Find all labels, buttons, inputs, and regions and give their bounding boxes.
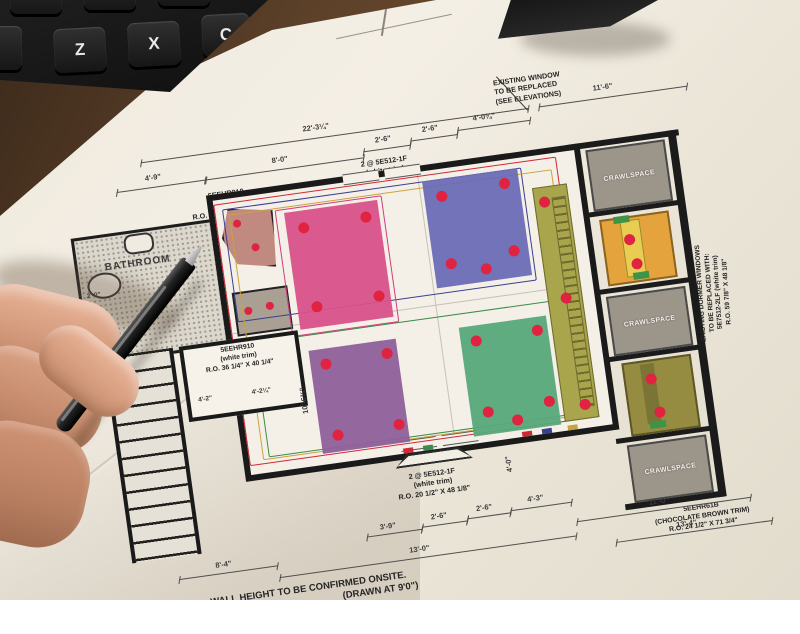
dim-3-9: 3'-9" <box>379 520 396 531</box>
dim-line-4-0-3-4 <box>457 120 530 131</box>
dim-8-4: 8'-4" <box>215 559 232 570</box>
dim-line-4-9 <box>117 180 206 194</box>
room-indigo <box>422 168 532 288</box>
dim-line-2-6d <box>467 512 511 519</box>
dim-line-3-9 <box>367 529 423 538</box>
photo-scene: 22'-3¼" 11'-6" 4'-9" 8'-0" 2'-6" 2'-6" 4… <box>0 0 800 600</box>
key-label: Z <box>74 40 85 61</box>
dim-line-2-6a <box>363 145 411 153</box>
dim-4-0-3-4: 4'-0¾" <box>472 111 495 123</box>
crawlspace-top: CRAWLSPACE <box>585 139 673 212</box>
crawlspace-middle: CRAWLSPACE <box>606 286 694 357</box>
key-partial <box>158 0 210 6</box>
key-x: X <box>127 21 181 68</box>
key-partial <box>0 26 22 70</box>
key-partial <box>84 0 136 10</box>
crawlspace-label: CRAWLSPACE <box>624 314 676 328</box>
crawlspace-label: CRAWLSPACE <box>603 168 655 182</box>
dim-4-0-vertical: 4'-0" <box>503 455 514 472</box>
window-label-bottom-center: 2 @ 5E512-1F (white trim) R.O. 20 1/2" X… <box>363 459 504 506</box>
key-label: C <box>219 25 232 46</box>
room-pink <box>284 200 394 330</box>
dim-line-4-3 <box>511 502 573 512</box>
note-wall-height: WALL HEIGHT TO BE CONFIRMED ONSITE. (DRA… <box>210 550 550 622</box>
room-purple <box>308 339 410 454</box>
room-green <box>459 316 561 437</box>
key-label: X <box>148 34 160 55</box>
callout-existing-window: EXISTING WINDOW TO BE REPLACED (SEE ELEV… <box>492 59 635 106</box>
dim-line-2-6b <box>410 134 458 142</box>
dim-2-6b: 2'-6" <box>421 123 438 134</box>
dim-4-3: 4'-3" <box>527 493 544 504</box>
crawlspace-bottom: CRAWLSPACE <box>627 434 714 503</box>
dim-line-22-3 <box>141 108 529 164</box>
dim-11-0: 11'-0" <box>648 495 669 507</box>
dim-4-9: 4'-9" <box>144 172 161 183</box>
dim-2-6a: 2'-6" <box>374 133 391 144</box>
dim-2-6d: 2'-6" <box>475 502 492 513</box>
dim-top-total: 22'-3¼" <box>302 121 330 134</box>
dim-line-2-6c <box>422 520 468 527</box>
key-partial <box>10 0 62 14</box>
faint-tick-line <box>381 8 387 36</box>
dim-2-6c: 2'-6" <box>430 510 447 521</box>
key-z: Z <box>53 27 107 74</box>
faint-dimension-line <box>336 14 452 40</box>
dim-8-0: 8'-0" <box>271 154 288 165</box>
crawlspace-label: CRAWLSPACE <box>644 462 696 476</box>
dim-13-0: 13'-0" <box>409 543 430 555</box>
